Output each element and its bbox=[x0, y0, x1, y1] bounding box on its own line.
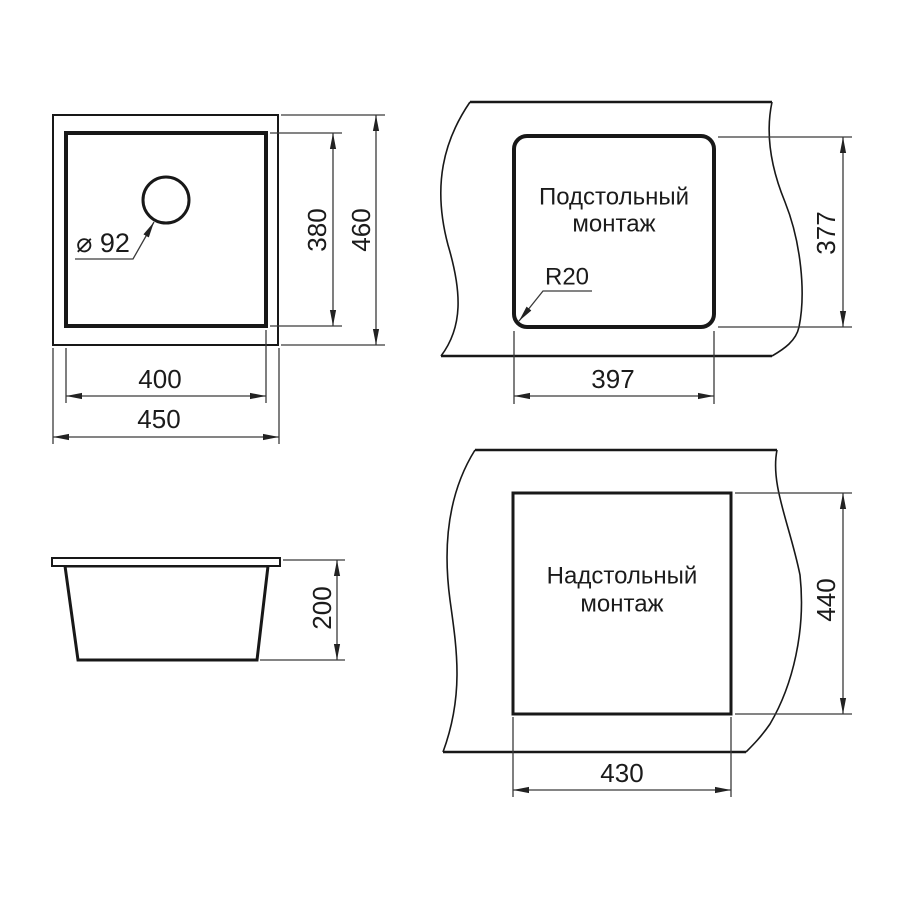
topmount-title-line2: монтаж bbox=[580, 591, 663, 618]
plan-view: ⌀ 92 380 460 400 450 bbox=[53, 115, 385, 444]
topmount-view: Надстольный монтаж 440 430 bbox=[443, 450, 852, 797]
dim-430-label: 430 bbox=[600, 758, 643, 788]
technical-drawing: ⌀ 92 380 460 400 450 Подстольный монтаж bbox=[0, 0, 900, 900]
undermount-view: Подстольный монтаж R20 397 377 bbox=[441, 102, 852, 404]
drawing-canvas: ⌀ 92 380 460 400 450 Подстольный монтаж bbox=[0, 0, 900, 900]
dim-460-label: 460 bbox=[346, 208, 376, 251]
corner-radius-label: R20 bbox=[545, 264, 589, 291]
undermount-break-line-right bbox=[769, 102, 802, 356]
dim-450-label: 450 bbox=[137, 404, 180, 434]
undermount-title-line2: монтаж bbox=[572, 211, 655, 238]
side-view: 200 bbox=[52, 558, 345, 660]
topmount-break-line-right bbox=[746, 450, 801, 752]
undermount-title-line1: Подстольный bbox=[539, 184, 689, 211]
dim-377-label: 377 bbox=[811, 211, 841, 254]
topmount-title-line1: Надстольный bbox=[547, 563, 698, 590]
dim-400-label: 400 bbox=[138, 364, 181, 394]
dim-440-label: 440 bbox=[811, 578, 841, 621]
topmount-break-line-left bbox=[443, 450, 475, 752]
dim-397-label: 397 bbox=[591, 364, 634, 394]
dim-380-label: 380 bbox=[302, 208, 332, 251]
side-view-rim bbox=[52, 558, 280, 566]
side-view-bowl bbox=[65, 566, 268, 660]
drain-diameter-label: ⌀ 92 bbox=[76, 228, 130, 258]
dim-200-label: 200 bbox=[307, 586, 337, 629]
undermount-break-line-left bbox=[441, 102, 470, 356]
